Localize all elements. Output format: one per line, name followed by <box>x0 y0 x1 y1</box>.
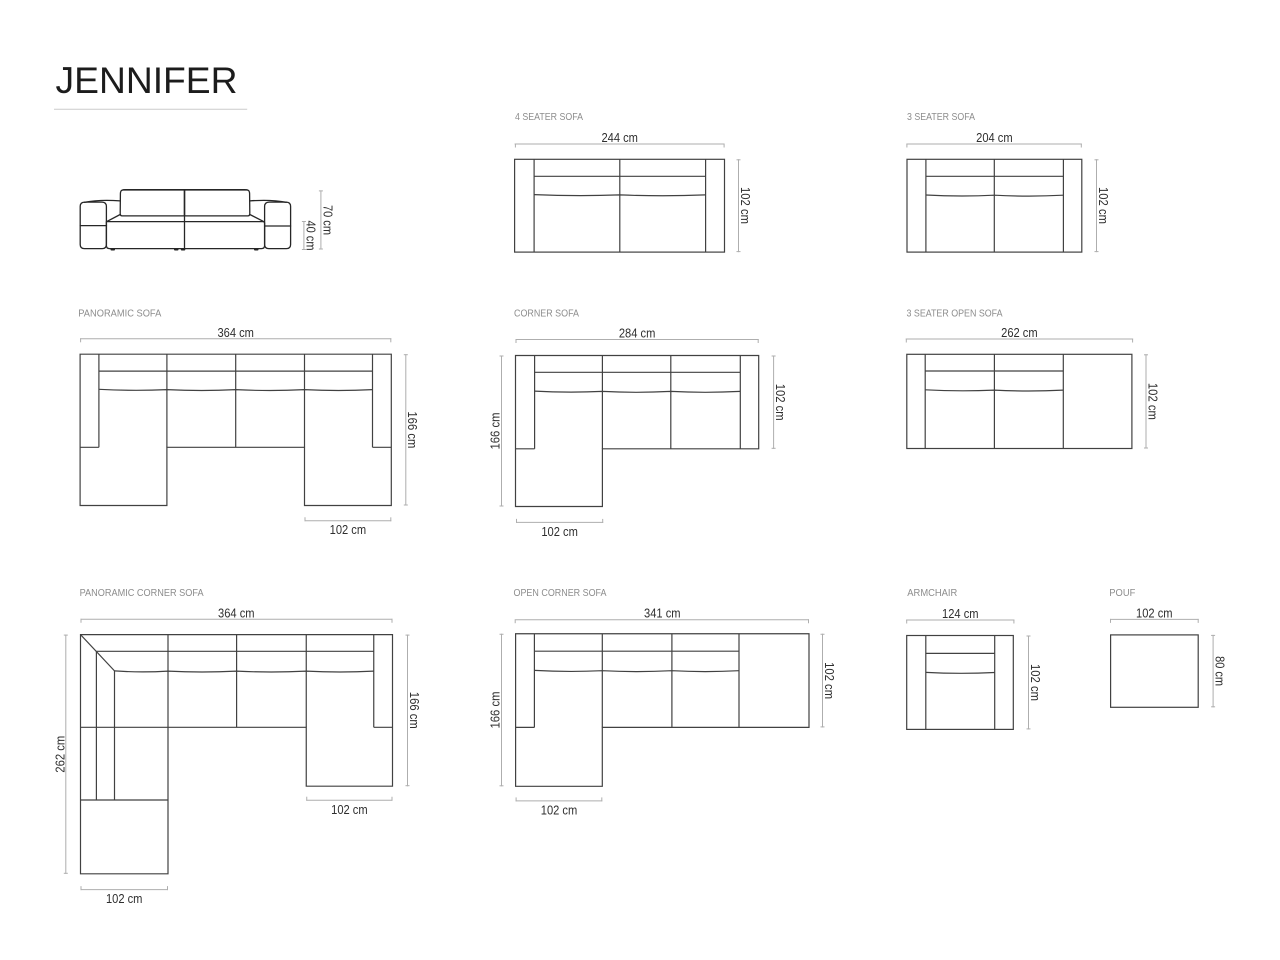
svg-text:102 cm: 102 cm <box>738 187 753 224</box>
svg-text:166 cm: 166 cm <box>487 692 502 729</box>
svg-text:80 cm: 80 cm <box>1213 656 1228 686</box>
svg-text:102 cm: 102 cm <box>822 662 837 699</box>
svg-text:102 cm: 102 cm <box>1028 664 1043 701</box>
svg-text:3 SEATER SOFA: 3 SEATER SOFA <box>907 111 975 123</box>
svg-text:102 cm: 102 cm <box>106 891 143 906</box>
svg-text:102 cm: 102 cm <box>773 384 788 421</box>
svg-text:102 cm: 102 cm <box>1145 383 1160 420</box>
svg-text:40 cm: 40 cm <box>303 221 318 251</box>
svg-text:OPEN CORNER SOFA: OPEN CORNER SOFA <box>514 587 607 599</box>
svg-text:JENNIFER: JENNIFER <box>56 59 238 101</box>
svg-text:CORNER SOFA: CORNER SOFA <box>514 308 579 320</box>
svg-text:3 SEATER OPEN SOFA: 3 SEATER OPEN SOFA <box>907 308 1003 320</box>
svg-text:PANORAMIC SOFA: PANORAMIC SOFA <box>78 308 161 320</box>
svg-text:364 cm: 364 cm <box>218 605 255 620</box>
svg-text:124 cm: 124 cm <box>942 606 979 621</box>
svg-text:364 cm: 364 cm <box>217 325 254 340</box>
svg-text:70 cm: 70 cm <box>320 205 335 235</box>
svg-text:ARMCHAIR: ARMCHAIR <box>907 587 957 599</box>
svg-text:262 cm: 262 cm <box>1001 325 1038 340</box>
svg-text:262 cm: 262 cm <box>52 736 67 773</box>
svg-text:102 cm: 102 cm <box>541 524 578 539</box>
svg-text:POUF: POUF <box>1109 587 1135 599</box>
svg-text:102 cm: 102 cm <box>1096 187 1111 224</box>
svg-text:102 cm: 102 cm <box>331 802 368 817</box>
svg-text:284 cm: 284 cm <box>619 326 656 341</box>
svg-text:102 cm: 102 cm <box>541 802 578 817</box>
svg-text:PANORAMIC CORNER SOFA: PANORAMIC CORNER SOFA <box>80 587 204 599</box>
svg-text:102 cm: 102 cm <box>1136 605 1173 620</box>
svg-text:341 cm: 341 cm <box>644 606 681 621</box>
svg-text:166 cm: 166 cm <box>405 411 420 448</box>
svg-text:204 cm: 204 cm <box>976 130 1013 145</box>
svg-text:166 cm: 166 cm <box>407 692 422 729</box>
svg-text:4 SEATER SOFA: 4 SEATER SOFA <box>515 111 583 123</box>
svg-text:166 cm: 166 cm <box>487 413 502 450</box>
svg-text:244 cm: 244 cm <box>601 130 638 145</box>
svg-text:102 cm: 102 cm <box>330 522 367 537</box>
